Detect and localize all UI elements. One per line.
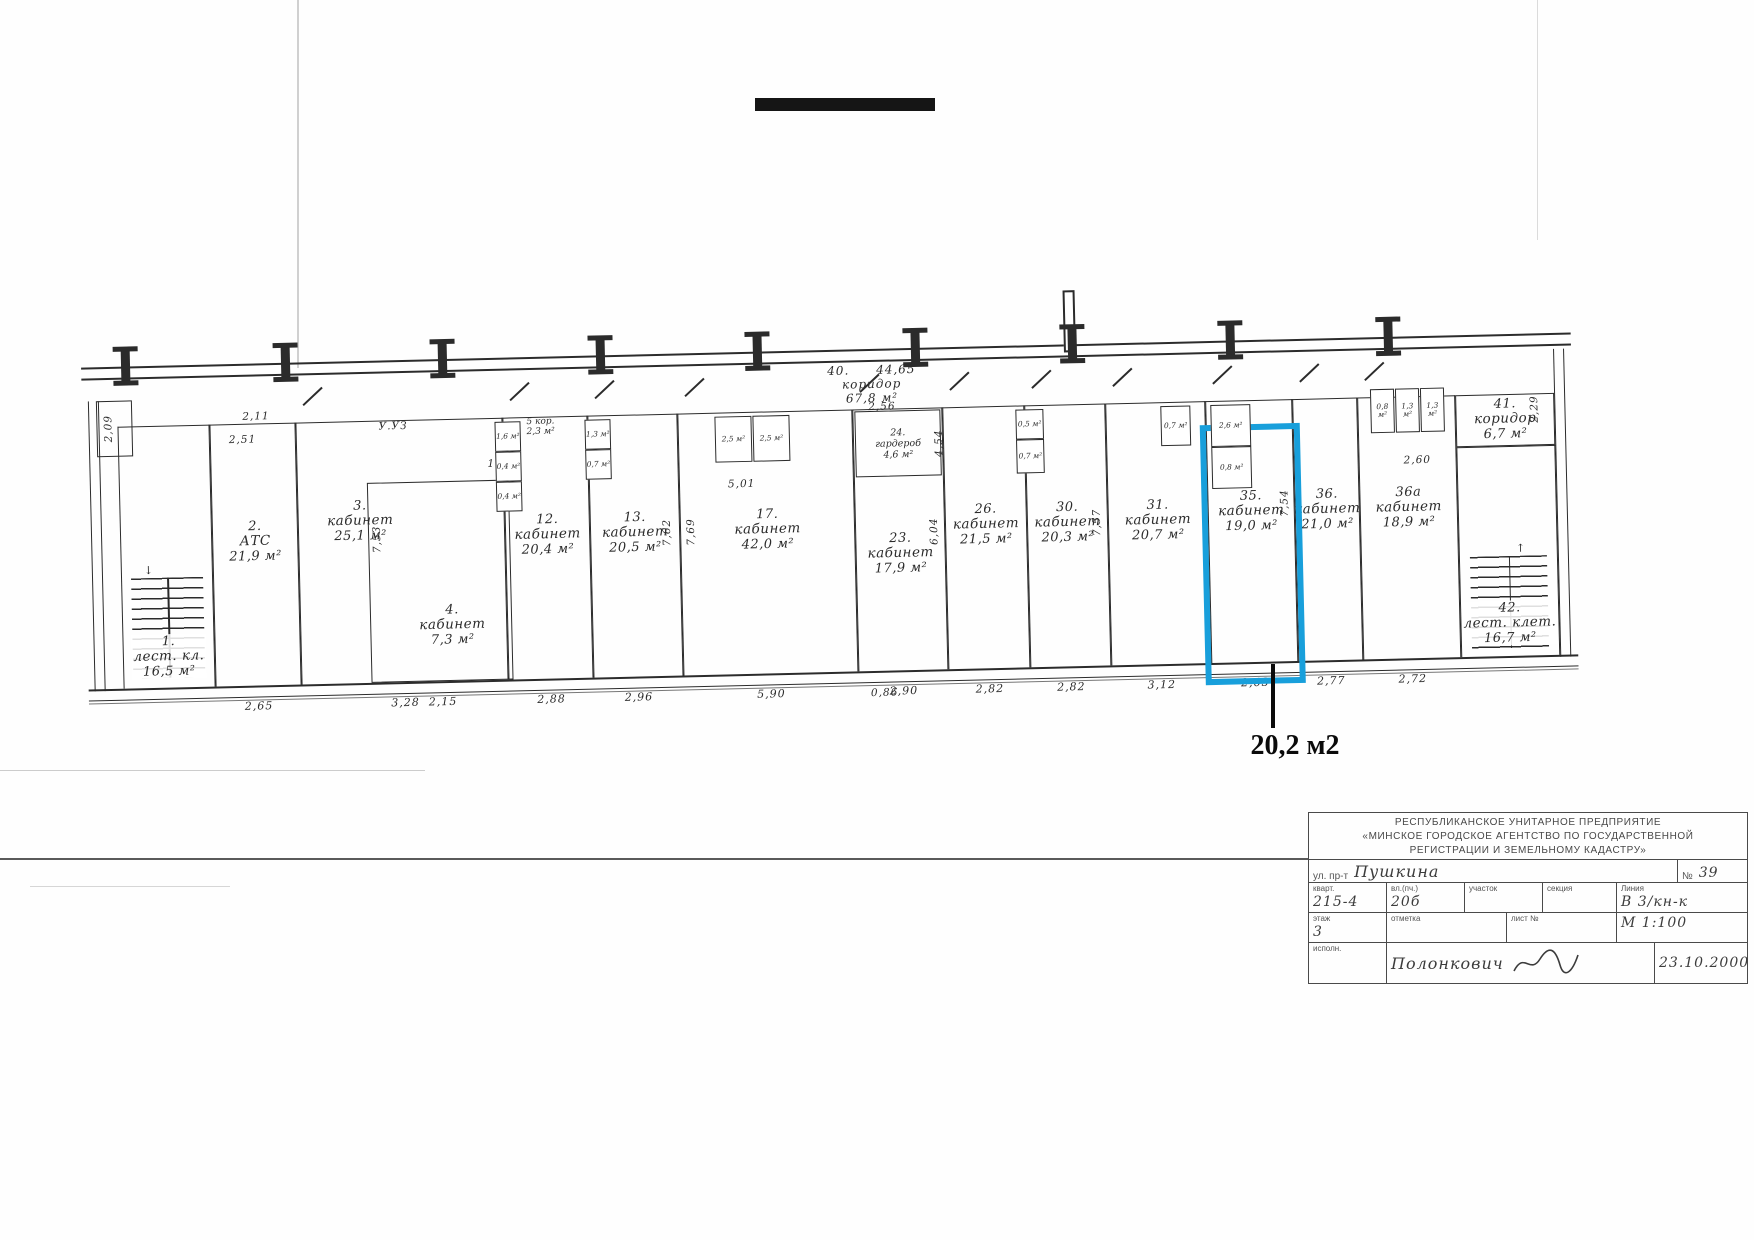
room-area: 21,5 м² xyxy=(953,531,1020,548)
room-bottom-dimension: 2,96 xyxy=(609,690,669,704)
small-room-area: 2,5 м² xyxy=(716,435,751,444)
title-block: РЕСПУБЛИКАНСКОЕ УНИТАРНОЕ ПРЕДПРИЯТИЕ «М… xyxy=(1308,812,1748,984)
room-label: 13.кабинет20,5 м² xyxy=(601,510,668,557)
dimension-label: 2,29 xyxy=(1528,395,1541,423)
staircase-arrow: ↑ xyxy=(1516,541,1526,554)
room-name: кабинет xyxy=(953,516,1020,533)
fold-line-vertical-right xyxy=(1537,0,1538,240)
room-label: 2.АТС21,9 м² xyxy=(228,519,282,565)
cell-vl-value: 20б xyxy=(1391,894,1420,910)
room-name: кабинет xyxy=(867,545,934,562)
room-name: лест. клет. xyxy=(1463,614,1556,631)
title-block-org: РЕСПУБЛИКАНСКОЕ УНИТАРНОЕ ПРЕДПРИЯТИЕ «М… xyxy=(1309,813,1747,859)
small-room-area: 0,7 м² xyxy=(1162,421,1190,430)
floor-plan: 40. 44,65 коридор 67,8 м² 5 кор. 2,3 м² … xyxy=(81,322,1579,729)
room-area: 21,0 м² xyxy=(1294,516,1361,533)
room-name: кабинет xyxy=(734,522,801,539)
sheet-label: лист № xyxy=(1511,914,1612,923)
fold-line-vertical xyxy=(297,0,299,368)
corridor-40-number: 40. xyxy=(827,364,849,379)
line-value: В 3/кн-к xyxy=(1621,894,1688,910)
room-bottom-dimension: 3,12 xyxy=(1132,678,1192,692)
house-number-value: 39 xyxy=(1699,865,1719,881)
door-swing xyxy=(1031,370,1051,389)
dimension-label: 2,09 xyxy=(102,415,115,443)
room-1: ↓1.лест. кл.16,5 м² xyxy=(117,425,215,689)
dimension-label: 7,62 xyxy=(661,519,674,547)
room-label: 1.лест. кл.16,5 м² xyxy=(131,633,207,680)
room-42: ↑42.лест. клет.16,7 м² xyxy=(1456,445,1560,657)
room-name: кабинет xyxy=(514,527,581,544)
street-value: Пушкина xyxy=(1354,862,1439,881)
small-room-area: 0,8 м² xyxy=(1213,463,1251,472)
line-label: Линия xyxy=(1621,884,1743,893)
small-room-8: 0,4 м² xyxy=(496,481,523,512)
dimension-label: 2,60 xyxy=(1403,454,1431,467)
scale-bar xyxy=(755,98,935,111)
small-room-37: 0,8 м² xyxy=(1370,389,1395,434)
small-room-area: 1,3 м² xyxy=(1396,402,1418,420)
rule-line-long xyxy=(0,858,1308,860)
cell-kvart-label: кварт. xyxy=(1313,884,1382,893)
room-bottom-dimension: 2,82 xyxy=(960,682,1020,696)
room-4: 4.кабинет7,3 м² xyxy=(367,480,514,683)
staircase-arrow: ↓ xyxy=(144,564,154,577)
cell-vl-label: вл.(пч.) xyxy=(1391,884,1460,893)
room-area: 16,5 м² xyxy=(134,663,205,680)
dimension-label: 0,86 xyxy=(871,686,899,699)
column-ibeam xyxy=(752,336,762,368)
small-room-19: 2,5 м² xyxy=(752,415,790,462)
small-room-32: 0,7 м² xyxy=(1160,405,1191,446)
room-label: 26.кабинет21,5 м² xyxy=(952,501,1019,548)
small-room-28: 0,7 м² xyxy=(1016,439,1045,474)
scanned-floor-plan-page: 40. 44,65 коридор 67,8 м² 5 кор. 2,3 м² … xyxy=(0,0,1754,1240)
small-room-34: 0,8 м² xyxy=(1211,446,1252,489)
room-bottom-dimension: 2,88 xyxy=(521,692,581,706)
dimension-label: 7,57 xyxy=(1091,509,1104,537)
room-area: 21,9 м² xyxy=(229,549,282,565)
room-bottom-dimension: 2,65 xyxy=(229,699,289,713)
dimension-label: 2,56 xyxy=(868,400,896,413)
house-number-label: № xyxy=(1682,872,1693,881)
rule-line-short-a xyxy=(0,770,425,771)
room-label: 36.кабинет21,0 м² xyxy=(1294,486,1361,533)
room-area: 20,5 м² xyxy=(602,540,669,557)
executor-label: исполн. xyxy=(1313,944,1382,953)
room-area: 16,7 м² xyxy=(1464,629,1557,646)
column-ibeam xyxy=(1383,321,1393,353)
column-ibeam xyxy=(281,347,291,379)
rule-line-short-b xyxy=(30,886,230,887)
small-room-area: 0,4 м² xyxy=(496,462,520,471)
small-room-area: 0,7 м² xyxy=(1017,452,1043,461)
room-bottom-dimension: 2,15 xyxy=(413,694,473,708)
title-block-address-row: ул. пр-т Пушкина № 39 xyxy=(1309,859,1747,882)
column-ibeam xyxy=(1225,324,1235,356)
room-name: коридор xyxy=(1474,411,1537,427)
room-name: лест. кл. xyxy=(133,648,204,665)
street-label: ул. пр-т xyxy=(1313,872,1348,881)
dimension-label: 6,04 xyxy=(928,517,941,545)
door-swing xyxy=(509,382,529,401)
cell-sekcia-label: секция xyxy=(1547,884,1612,893)
room-area: 17,9 м² xyxy=(868,560,935,577)
room-label: 36акабинет18,9 м² xyxy=(1375,484,1442,531)
column-ibeam xyxy=(438,343,448,375)
dimension-label: 7,53 xyxy=(371,526,384,554)
column-ibeam xyxy=(596,339,606,371)
column-ibeam xyxy=(910,332,920,364)
room-bottom-dimension: 5,90 xyxy=(741,687,801,701)
small-room-7: 0,4 м² xyxy=(495,451,522,482)
room-name: кабинет xyxy=(1125,512,1192,529)
small-room-18: 2,5 м² xyxy=(714,416,752,463)
room-label: 31.кабинет20,7 м² xyxy=(1124,497,1191,544)
small-room-area: 0,8 м² xyxy=(1371,402,1393,420)
cell-uchastok-label: участок xyxy=(1469,884,1538,893)
scale-value: М 1:100 xyxy=(1621,915,1687,931)
mark-label: отметка xyxy=(1391,914,1502,923)
room-name: кабинет xyxy=(602,525,669,542)
room-area: 20,7 м² xyxy=(1125,527,1192,544)
room-36a: 36акабинет18,9 м² xyxy=(1357,395,1461,659)
room-area: 42,0 м² xyxy=(735,537,802,554)
small-room-area: 1,3 м² xyxy=(586,430,610,439)
column-ibeam xyxy=(1067,328,1077,360)
small-room-area: 1,6 м² xyxy=(496,432,520,441)
room-area: 18,9 м² xyxy=(1376,514,1443,531)
org-line1: РЕСПУБЛИКАНСКОЕ УНИТАРНОЕ ПРЕДПРИЯТИЕ xyxy=(1395,817,1661,828)
room-name: кабинет xyxy=(1375,499,1442,516)
org-line2: «МИНСКОЕ ГОРОДСКОЕ АГЕНТСТВО ПО ГОСУДАРС… xyxy=(1362,831,1693,842)
floor-value: 3 xyxy=(1313,924,1323,940)
small-room-27: 0,5 м² xyxy=(1015,409,1044,440)
note-area-label: 20,2 м2 xyxy=(1205,730,1385,762)
room-label: 4.кабинет7,3 м² xyxy=(419,601,486,648)
room-name: кабинет xyxy=(1294,501,1361,518)
door-swing xyxy=(1299,363,1319,382)
small-room-area: 1,3 м² xyxy=(1421,401,1443,419)
executor-value: Полонкович xyxy=(1391,954,1504,973)
room-bottom-dimension: 2,77 xyxy=(1301,674,1361,688)
room-area: 6,7 м² xyxy=(1474,426,1537,442)
cell-kvart-value: 215-4 xyxy=(1313,894,1358,910)
small-room-15: 0,7 м² xyxy=(585,449,612,480)
title-block-parcel-row: кварт. 215-4 вл.(пч.) 20б участок секция… xyxy=(1309,882,1747,912)
note-pointer-line xyxy=(1271,664,1275,728)
room-label: 12.кабинет20,4 м² xyxy=(514,512,581,559)
room-label: 23.кабинет17,9 м² xyxy=(867,530,934,577)
door-swing xyxy=(1364,362,1384,381)
dimension-label: 2,11 xyxy=(242,410,270,423)
dimension-label: 5,01 xyxy=(728,478,756,491)
room-2: 2.АТС21,9 м² xyxy=(209,423,301,687)
dimension-label: У.УЗ xyxy=(378,420,407,433)
date-value: 23.10.2000 xyxy=(1659,955,1749,971)
door-swing xyxy=(594,380,614,399)
column-ibeam xyxy=(121,350,131,382)
door-swing xyxy=(1212,365,1232,384)
room-area: 20,4 м² xyxy=(515,542,582,559)
dimension-label: 7,69 xyxy=(685,518,698,546)
room-name: кабинет xyxy=(419,616,486,633)
dimension-label: 4,54 xyxy=(933,429,946,457)
floor-label: этаж xyxy=(1313,914,1382,923)
room-area: 7,3 м² xyxy=(419,631,486,648)
room-bottom-dimension: 2,82 xyxy=(1041,680,1101,694)
small-room-39: 1,3 м² xyxy=(1420,387,1445,432)
small-room-area: 0,4 м² xyxy=(497,492,521,501)
room-label: 17.кабинет42,0 м² xyxy=(734,507,801,554)
small-room-14: 1,3 м² xyxy=(584,419,611,450)
door-swing xyxy=(1112,368,1132,387)
small-room-area: 0,7 м² xyxy=(586,460,610,469)
small-room-area: 2,5 м² xyxy=(754,434,789,443)
title-block-floor-row: этаж 3 отметка лист № М 1:100 xyxy=(1309,912,1747,942)
door-swing xyxy=(684,378,704,397)
room-label: 42.лест. клет.16,7 м² xyxy=(1461,599,1559,646)
small-room-area: 2,6 м² xyxy=(1212,421,1250,430)
small-room-38: 1,3 м² xyxy=(1395,388,1420,433)
room-31: 31.кабинет20,7 м² xyxy=(1105,401,1211,665)
dimension-label: 2,51 xyxy=(229,433,257,446)
door-swing xyxy=(302,387,322,406)
org-line3: РЕГИСТРАЦИИ И ЗЕМЕЛЬНОМУ КАДАСТРУ» xyxy=(1410,845,1647,856)
small-room-6: 1,6 м² xyxy=(494,421,521,452)
room-bottom-dimension: 2,72 xyxy=(1383,672,1443,686)
signature-scribble xyxy=(1510,949,1580,977)
small-room-area: 0,5 м² xyxy=(1017,420,1043,429)
room-name: АТС xyxy=(229,534,282,550)
small-room-33: 2,6 м² xyxy=(1210,404,1251,447)
title-block-signature-row: исполн. Полонкович 23.10.2000 xyxy=(1309,942,1747,983)
